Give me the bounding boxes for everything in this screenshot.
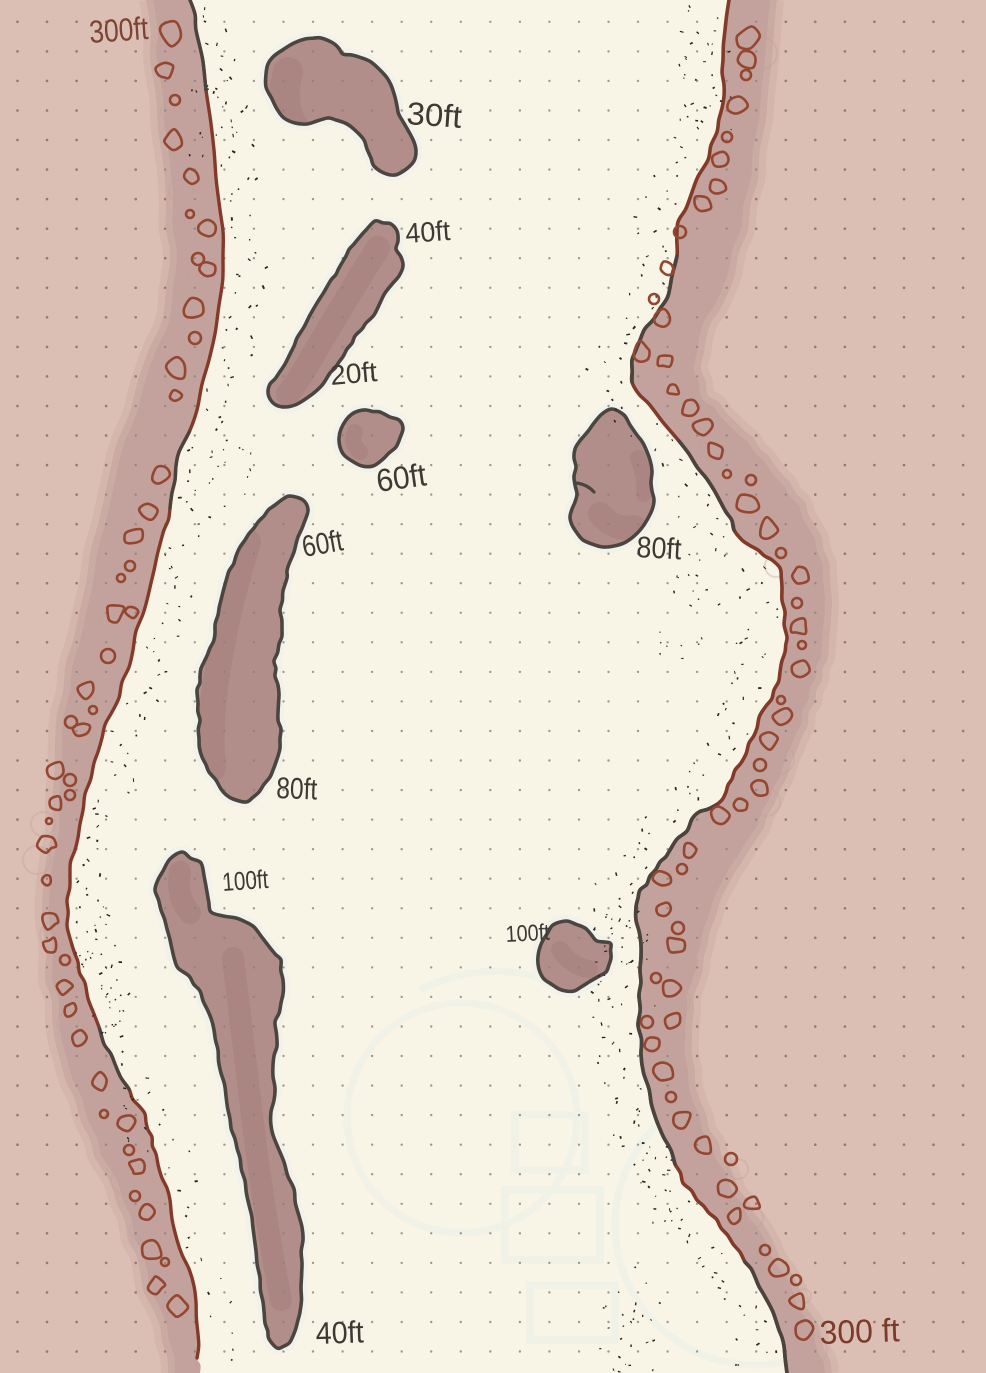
svg-text:80ft: 80ft xyxy=(276,772,319,806)
svg-text:30ft: 30ft xyxy=(406,95,463,135)
svg-text:100ft: 100ft xyxy=(505,919,551,947)
svg-text:300 ft: 300 ft xyxy=(819,1311,900,1351)
svg-text:20ft: 20ft xyxy=(329,356,379,391)
svg-text:300ft: 300ft xyxy=(88,10,149,50)
svg-text:100ft: 100ft xyxy=(221,864,270,897)
svg-text:80ft: 80ft xyxy=(636,531,683,566)
svg-text:60ft: 60ft xyxy=(374,456,429,499)
svg-text:40ft: 40ft xyxy=(315,1314,365,1351)
svg-text:40ft: 40ft xyxy=(404,215,451,249)
